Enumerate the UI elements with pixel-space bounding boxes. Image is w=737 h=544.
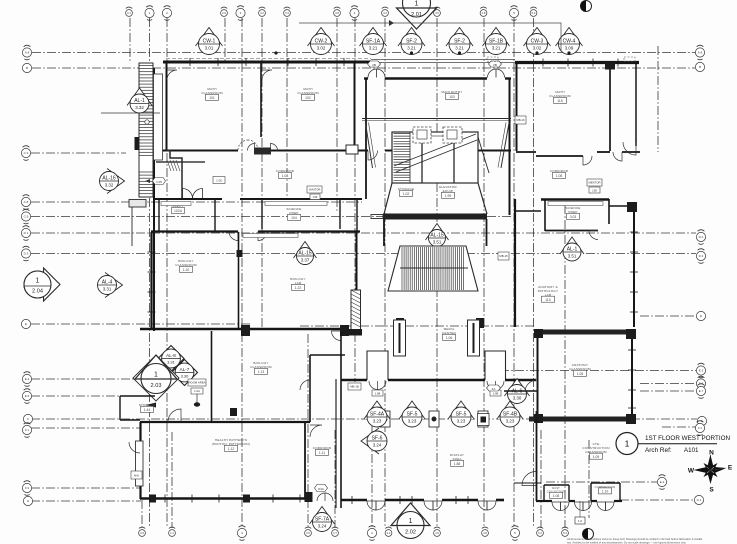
svg-text:E.4: E.4 [25, 377, 30, 381]
svg-text:2.9: 2.9 [222, 11, 226, 15]
svg-text:3.23: 3.23 [457, 419, 466, 424]
svg-text:1.88: 1.88 [375, 391, 381, 395]
svg-text:Arch Ref:: Arch Ref: [645, 447, 672, 454]
svg-text:SF-5: SF-5 [456, 412, 467, 418]
svg-text:1.13: 1.13 [258, 370, 265, 374]
svg-text:1.06: 1.06 [446, 336, 453, 340]
svg-text:1: 1 [625, 439, 630, 449]
svg-text:3.8: 3.8 [335, 11, 339, 15]
svg-text:AL-16: AL-16 [102, 176, 116, 182]
svg-text:1.22: 1.22 [295, 286, 302, 290]
svg-text:D.1: D.1 [699, 235, 704, 239]
svg-text:3.01: 3.01 [205, 46, 214, 51]
svg-text:E.2: E.2 [660, 480, 665, 484]
svg-text:AL-1: AL-1 [134, 98, 145, 104]
svg-text:4.5: 4.5 [435, 531, 439, 535]
svg-text:CW-4: CW-4 [563, 39, 576, 45]
svg-text:JANITOR: JANITOR [309, 188, 321, 192]
svg-text:3.23: 3.23 [506, 419, 515, 424]
svg-text:1: 1 [409, 518, 413, 525]
svg-text:AL-15: AL-15 [430, 233, 444, 239]
svg-text:A101: A101 [684, 447, 699, 454]
svg-text:3.37: 3.37 [301, 258, 310, 263]
svg-text:CW-1: CW-1 [203, 39, 216, 45]
svg-text:101: 101 [209, 96, 215, 100]
svg-text:1.44: 1.44 [144, 408, 151, 412]
svg-text:A.8: A.8 [25, 51, 30, 55]
svg-text:SF-6: SF-6 [372, 436, 383, 442]
svg-text:SF-2: SF-2 [406, 39, 417, 45]
svg-text:SF-5: SF-5 [407, 412, 418, 418]
svg-text:3.51: 3.51 [433, 240, 442, 245]
svg-text:3.2: 3.2 [260, 11, 264, 15]
svg-text:1.20: 1.20 [183, 268, 190, 272]
svg-text:E: E [700, 314, 702, 318]
svg-text:110: 110 [545, 298, 551, 302]
svg-text:4.8: 4.8 [482, 11, 486, 15]
svg-text:F.3: F.3 [25, 486, 29, 490]
svg-text:4.5: 4.5 [435, 11, 439, 15]
svg-text:1.02: 1.02 [403, 192, 410, 196]
svg-text:3.23: 3.23 [408, 419, 417, 424]
svg-text:3.21: 3.21 [492, 46, 501, 51]
svg-text:3.21: 3.21 [455, 46, 464, 51]
svg-text:SF-2: SF-2 [454, 39, 465, 45]
svg-text:AL-1: AL-1 [567, 247, 578, 253]
svg-text:SF-4A: SF-4A [370, 412, 385, 418]
svg-text:3.30: 3.30 [513, 396, 522, 401]
svg-text:AL-8: AL-8 [166, 353, 176, 358]
svg-text:1.0A: 1.0A [194, 389, 200, 393]
svg-text:4.8: 4.8 [483, 531, 487, 535]
svg-text:3.51: 3.51 [568, 254, 577, 259]
svg-text:1: 1 [415, 1, 419, 8]
svg-text:F.1: F.1 [25, 428, 29, 432]
svg-text:2.03: 2.03 [151, 383, 162, 389]
svg-text:E.3: E.3 [699, 369, 704, 373]
svg-text:G.1: G.1 [697, 498, 702, 502]
svg-text:N: N [709, 450, 714, 457]
svg-text:4.2: 4.2 [383, 11, 387, 15]
svg-text:tion. Architect to be notified: tion. Architect to be notified of any di… [567, 540, 686, 544]
svg-text:4A: 4A [492, 387, 496, 391]
svg-text:AL-4: AL-4 [102, 280, 113, 286]
svg-text:3.3: 3.3 [285, 11, 289, 15]
svg-text:0.1: 0.1 [127, 11, 131, 15]
svg-text:AL-7: AL-7 [180, 367, 190, 372]
svg-text:139: 139 [313, 195, 318, 199]
svg-text:2B: 2B [493, 63, 497, 67]
svg-text:3.09: 3.09 [565, 46, 574, 51]
svg-text:3.31: 3.31 [103, 287, 112, 292]
svg-text:D4A: D4A [318, 487, 324, 491]
svg-text:2.02: 2.02 [405, 530, 416, 536]
svg-text:1.09: 1.09 [593, 455, 600, 459]
svg-text:DUST: DUST [552, 486, 560, 490]
svg-text:E.7: E.7 [699, 389, 704, 393]
svg-text:5.2: 5.2 [532, 11, 536, 15]
svg-text:F: F [27, 417, 29, 421]
svg-text:MB-16: MB-16 [516, 118, 525, 122]
svg-text:C.8: C.8 [24, 200, 29, 204]
svg-text:MENTOR: MENTOR [588, 181, 600, 185]
svg-text:E.5: E.5 [25, 394, 30, 398]
svg-text:1: 1 [36, 278, 40, 285]
svg-text:1ST FLOOR WEST PORTION: 1ST FLOOR WEST PORTION [645, 435, 730, 442]
svg-text:3.03: 3.03 [570, 215, 577, 219]
svg-text:4.2: 4.2 [387, 531, 391, 535]
svg-text:E: E [728, 465, 733, 472]
svg-text:MB-1B: MB-1B [350, 385, 359, 389]
svg-text:F.1: F.1 [698, 426, 702, 430]
svg-text:CW-3: CW-3 [531, 39, 544, 45]
svg-text:SF-1A: SF-1A [366, 39, 381, 45]
svg-text:1.88: 1.88 [493, 391, 499, 395]
svg-text:1.08: 1.08 [556, 174, 563, 178]
svg-text:B: B [26, 66, 28, 70]
svg-text:0.9: 0.9 [140, 531, 144, 535]
svg-text:CW-2: CW-2 [315, 39, 328, 45]
svg-text:5.3: 5.3 [563, 531, 567, 535]
svg-text:3.24: 3.24 [318, 524, 327, 529]
svg-text:138: 138 [592, 188, 597, 192]
svg-text:2.1: 2.1 [170, 531, 174, 535]
svg-text:1.05: 1.05 [216, 179, 222, 183]
svg-text:SF-1B: SF-1B [489, 39, 504, 45]
svg-text:1.08: 1.08 [282, 174, 289, 178]
svg-text:S: S [709, 487, 714, 494]
svg-text:1.12: 1.12 [228, 447, 235, 451]
svg-text:1.0: 1.0 [578, 519, 583, 523]
svg-text:ROOM AREA: ROOM AREA [189, 381, 206, 385]
svg-text:1.88: 1.88 [454, 462, 461, 466]
svg-text:3.30: 3.30 [181, 373, 190, 378]
svg-text:115: 115 [557, 99, 563, 103]
svg-text:3.21: 3.21 [369, 46, 378, 51]
svg-text:2.04: 2.04 [32, 289, 43, 295]
svg-text:C.9: C.9 [24, 215, 29, 219]
svg-text:3.23: 3.23 [373, 419, 382, 424]
svg-text:C.3: C.3 [24, 151, 29, 155]
svg-text:3.7: 3.7 [333, 531, 337, 535]
svg-text:3.5: 3.5 [306, 531, 310, 535]
svg-text:3.31: 3.31 [167, 359, 176, 364]
svg-text:SF-4B: SF-4B [503, 412, 518, 418]
svg-text:103: 103 [449, 95, 455, 99]
svg-text:102A: 102A [174, 209, 183, 213]
svg-text:1.11: 1.11 [319, 451, 325, 455]
svg-text:104: 104 [291, 216, 297, 220]
svg-text:AL-15: AL-15 [298, 251, 312, 257]
svg-text:1: 1 [154, 372, 158, 379]
svg-text:3.32: 3.32 [105, 183, 114, 188]
svg-text:102: 102 [305, 96, 311, 100]
svg-text:B: B [699, 65, 701, 69]
svg-text:AHU: AHU [134, 473, 140, 477]
svg-text:1.10: 1.10 [602, 490, 609, 494]
svg-text:MB-15: MB-15 [499, 254, 508, 258]
svg-text:D.3: D.3 [24, 252, 29, 256]
svg-text:1.99: 1.99 [445, 194, 452, 198]
svg-text:2B: 2B [372, 63, 376, 67]
svg-text:3.21: 3.21 [407, 46, 416, 51]
svg-text:1.05: 1.05 [156, 180, 162, 184]
svg-text:3.24: 3.24 [373, 443, 382, 448]
svg-text:W: W [688, 468, 695, 475]
svg-text:1.05: 1.05 [577, 372, 584, 376]
svg-text:D.3: D.3 [699, 254, 704, 258]
svg-text:1.08: 1.08 [553, 494, 560, 498]
svg-text:3.02: 3.02 [317, 46, 326, 51]
svg-text:3.32: 3.32 [135, 105, 144, 110]
svg-text:All dimensions and conditions: All dimensions and conditions shown in t… [567, 537, 703, 541]
svg-text:E: E [25, 322, 27, 326]
svg-text:SF-7A: SF-7A [315, 517, 330, 523]
svg-text:D.1: D.1 [24, 231, 29, 235]
svg-text:3.02: 3.02 [533, 46, 542, 51]
svg-text:2.01: 2.01 [411, 12, 422, 18]
svg-text:A.8: A.8 [698, 51, 703, 55]
svg-text:5.2: 5.2 [538, 531, 542, 535]
